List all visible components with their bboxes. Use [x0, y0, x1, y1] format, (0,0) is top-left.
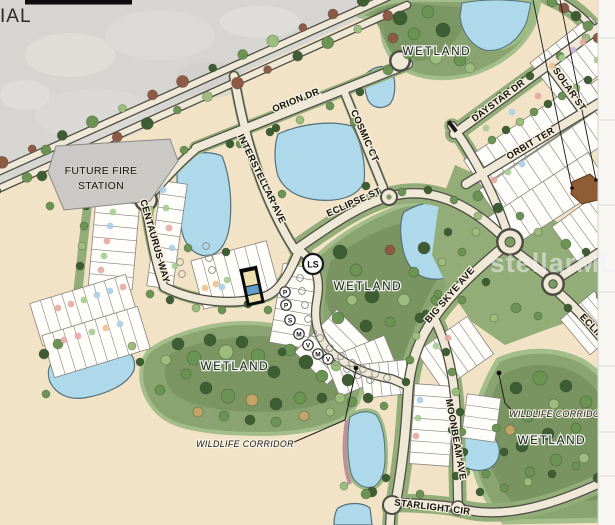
lot-status-dot [433, 343, 440, 350]
tree-icon [238, 49, 248, 59]
tree-icon [180, 146, 188, 154]
lot-type-marker: M [313, 349, 323, 359]
wetland-label-top: WETLAND [403, 46, 472, 58]
tree-icon [335, 393, 345, 403]
lot-status-dot [166, 225, 173, 232]
lot-status-dot [107, 288, 114, 295]
tree-icon [473, 191, 483, 201]
tree-icon [544, 100, 552, 108]
tree-icon [299, 411, 309, 421]
tree-icon [222, 248, 230, 256]
tree-icon [584, 76, 592, 84]
wetland-label-southeast: WETLAND [518, 435, 587, 447]
tree-icon [264, 66, 272, 74]
lot-status-dot [107, 223, 114, 230]
lot-status-dot [519, 161, 526, 168]
tree-icon [278, 190, 286, 198]
tree-icon [146, 290, 154, 298]
tree-icon [181, 369, 191, 379]
lot-status-dot [505, 169, 512, 176]
wildlife-corridor-label-west: WILDLIFE CORRIDOR [196, 439, 294, 449]
tree-icon [511, 303, 521, 313]
tree-icon [177, 75, 189, 87]
tree-icon [236, 336, 248, 348]
tree-icon [474, 212, 482, 220]
lot-status-dot [491, 177, 498, 184]
tree-icon [316, 370, 328, 382]
lot-status-dot [415, 415, 422, 422]
tree-icon [533, 371, 547, 385]
tree-icon [362, 182, 370, 190]
tree-icon [448, 368, 456, 376]
future-fire-station-label: STATION [78, 180, 124, 192]
tree-icon [296, 116, 304, 124]
tree-icon [204, 334, 216, 346]
ls-marker: LS [303, 254, 323, 274]
tree-icon [442, 348, 450, 356]
tree-icon [317, 393, 327, 403]
tree-icon [166, 296, 174, 304]
tree-icon [564, 304, 572, 312]
tree-icon [412, 332, 420, 340]
lot-status-dot [89, 329, 96, 336]
lot-status-dot [75, 333, 82, 340]
lot-status-dot [101, 253, 108, 260]
tree-icon [22, 172, 32, 182]
lot-type-letter: P [284, 302, 289, 309]
lot-type-marker: P [280, 287, 290, 297]
tree-icon [380, 402, 388, 410]
tree-icon [361, 489, 371, 499]
tree-icon [326, 408, 334, 416]
lot-status-dot [120, 284, 127, 291]
tree-icon [516, 118, 524, 126]
wildlife-corridor-label-east: WILDLIFE CORRIDOR [509, 409, 607, 419]
lot-status-dot [219, 284, 226, 291]
tree-icon [46, 202, 54, 210]
tree-icon [209, 64, 217, 72]
tree-icon [385, 317, 395, 327]
tree-icon [438, 258, 446, 266]
tree-icon [328, 9, 338, 19]
tree-icon [524, 478, 532, 486]
tree-icon [147, 90, 157, 100]
tree-icon [482, 470, 490, 478]
tree-icon [383, 65, 393, 75]
lot-status-dot [213, 281, 220, 288]
tree-icon [510, 382, 522, 394]
tree-icon [382, 474, 390, 482]
lot-status-dot [103, 325, 110, 332]
leader-dot [497, 371, 502, 376]
tree-icon [409, 267, 419, 277]
tree-icon [278, 348, 286, 356]
tree-icon [37, 171, 47, 181]
leader-dot [354, 366, 359, 371]
tree-icon [78, 242, 86, 250]
tree-icon [490, 314, 498, 322]
tree-icon [187, 351, 201, 365]
tree-icon [482, 278, 490, 286]
tree-icon [322, 37, 334, 49]
lot-type-marker: S [285, 315, 295, 325]
tree-icon [80, 222, 88, 230]
tree-icon [226, 140, 234, 148]
lot-status-dot [417, 397, 424, 404]
tree-icon [530, 108, 538, 116]
tree-icon [268, 366, 280, 378]
tree-icon [354, 25, 362, 33]
tree-icon [406, 356, 414, 364]
tree-icon [173, 106, 181, 114]
tree-icon [388, 33, 398, 43]
map-canvas: FUTURE FIRE STATION LS PPSMVMV ORION DR … [0, 0, 615, 525]
tree-icon [558, 92, 566, 100]
tree-icon [492, 424, 500, 432]
tree-icon [583, 21, 593, 31]
tree-icon [266, 128, 274, 136]
lot-status-dot [94, 292, 101, 299]
tree-icon [408, 28, 420, 40]
lot-type-marker: V [323, 354, 333, 364]
tree-icon [502, 126, 510, 134]
tree-icon [402, 378, 410, 386]
tree-icon [155, 385, 165, 395]
tree-icon [356, 88, 364, 96]
tree-icon [342, 374, 354, 386]
lot-status-dot [68, 301, 75, 308]
tree-icon [42, 390, 50, 398]
tree-icon [422, 6, 434, 18]
tree-icon [219, 345, 233, 359]
tree-icon [299, 24, 307, 32]
lot-strip [461, 394, 501, 442]
tree-icon [452, 388, 460, 396]
pond [345, 408, 388, 490]
traffic-island [380, 188, 398, 206]
tree-icon [580, 396, 592, 408]
tree-icon [184, 244, 192, 252]
lot-status-dot [81, 297, 88, 304]
tree-icon [299, 355, 313, 369]
tree-icon [141, 118, 153, 130]
tree-icon [86, 116, 98, 128]
tree-icon [465, 63, 475, 73]
tree-icon [476, 488, 484, 496]
tree-icon [232, 77, 244, 89]
tree-icon [398, 188, 406, 196]
tree-icon [161, 355, 171, 365]
tree-icon [271, 417, 281, 427]
tree-icon [245, 415, 255, 425]
tree-icon [418, 242, 430, 254]
lot-type-letter: P [283, 289, 288, 296]
tree-icon [571, 423, 581, 433]
tree-icon [505, 425, 515, 435]
lot-status-dot [224, 277, 231, 284]
tree-icon [39, 349, 49, 359]
leader-dot [570, 186, 574, 190]
tree-icon [347, 295, 357, 305]
tree-icon [493, 203, 503, 213]
tree-icon [458, 248, 466, 256]
tree-icon [128, 342, 136, 350]
tree-icon [416, 490, 424, 498]
tree-icon [385, 245, 395, 255]
tree-icon [112, 132, 122, 142]
lot-type-letter: V [306, 342, 311, 349]
lot-type-marker: V [303, 340, 313, 350]
tree-icon [534, 312, 542, 320]
tree-icon [571, 11, 581, 21]
lot-type-marker: M [294, 329, 304, 339]
lot-status-dot [559, 55, 566, 62]
tree-icon [28, 145, 36, 153]
tree-icon [219, 411, 229, 421]
tree-icon [383, 11, 393, 21]
tree-icon [293, 51, 303, 61]
ls-marker-label: LS [307, 260, 319, 270]
tree-icon [136, 358, 144, 366]
tree-icon [560, 380, 572, 392]
tree-icon [57, 130, 67, 140]
tree-icon [579, 453, 589, 463]
tree-icon [332, 312, 344, 324]
tree-icon [118, 104, 126, 112]
tree-icon [450, 196, 458, 204]
pond [275, 123, 365, 200]
top-edge-bar [25, 0, 132, 5]
tree-icon [267, 35, 279, 47]
lot-status-dot [483, 125, 490, 132]
tree-icon [200, 382, 212, 394]
tree-icon [192, 304, 200, 312]
tree-icon [333, 245, 347, 259]
tree-icon [458, 296, 466, 304]
lot-type-letter: M [296, 331, 301, 338]
pond [177, 153, 231, 256]
tree-icon [340, 482, 348, 490]
tree-icon [472, 228, 480, 236]
tree-icon [547, 0, 557, 7]
tree-icon [264, 306, 272, 314]
lot-status-dot [535, 93, 542, 100]
tree-icon [76, 262, 84, 270]
tree-icon [444, 228, 452, 236]
tree-icon [221, 389, 235, 403]
tree-icon [41, 145, 51, 155]
tree-icon [572, 462, 580, 470]
tree-icon [218, 306, 226, 314]
tree-icon [488, 136, 496, 144]
lot-status-dot [169, 245, 176, 252]
tree-icon [500, 448, 508, 456]
tree-icon [270, 398, 282, 410]
wetland-label-center: WETLAND [334, 281, 403, 293]
lot-status-dot [445, 335, 452, 342]
tree-icon [500, 484, 508, 492]
lot-status-dot [117, 321, 124, 328]
lot-status-dot [104, 238, 111, 245]
tree-icon [294, 392, 306, 404]
lot-type-letter: S [288, 317, 293, 324]
edge-text-partial: IAL [0, 6, 32, 27]
lot-status-dot [413, 433, 420, 440]
future-fire-station-label: FUTURE FIRE [65, 165, 138, 177]
wetland-label-southwest: WETLAND [201, 361, 270, 373]
tree-icon [424, 186, 432, 194]
lot-status-dot [160, 187, 167, 194]
lot-status-dot [98, 267, 105, 274]
tree-icon [534, 228, 542, 236]
tree-icon [326, 102, 334, 110]
tree-icon [436, 23, 450, 37]
pond [334, 504, 372, 525]
tree-icon [172, 338, 184, 350]
lot-status-dot [61, 337, 68, 344]
tree-icon [516, 212, 524, 220]
lot-status-dot [509, 109, 516, 116]
tree-icon [526, 72, 534, 80]
watermark: stellarMLS [490, 248, 615, 278]
tree-icon [548, 470, 556, 478]
lot-status-dot [202, 285, 209, 292]
lot-type-marker: P [281, 300, 291, 310]
tree-icon [193, 407, 203, 417]
tree-icon [550, 454, 562, 466]
lot-status-dot [163, 205, 170, 212]
tree-icon [246, 394, 258, 406]
lot-status-dot [55, 305, 62, 312]
lot-type-letter: M [315, 351, 320, 358]
tree-icon [350, 264, 362, 276]
site-plan-map: FUTURE FIRE STATION LS PPSMVMV ORION DR … [0, 0, 615, 525]
tree-icon [398, 294, 410, 306]
tree-icon [360, 320, 372, 332]
leader-dot [594, 178, 598, 182]
tree-icon [549, 399, 559, 409]
lot-type-letter: V [326, 356, 331, 363]
lot-status-dot [110, 209, 117, 216]
tree-icon [202, 92, 212, 102]
tree-icon [525, 467, 535, 477]
tree-icon [363, 393, 373, 403]
lot-status-dot [580, 39, 587, 46]
tree-icon [393, 11, 407, 25]
